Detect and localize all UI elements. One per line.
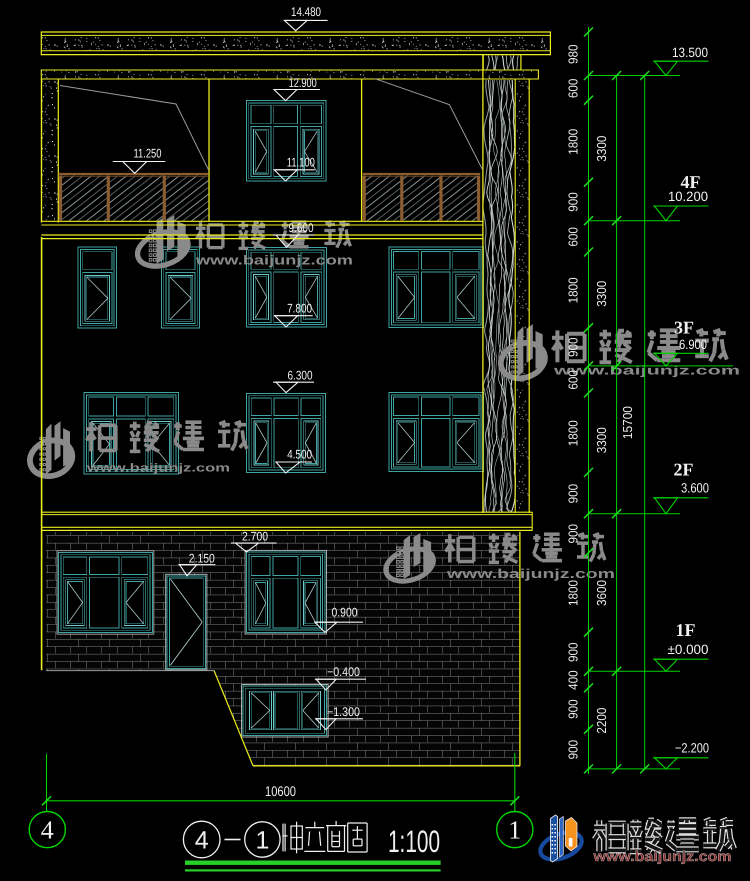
svg-text:3F: 3F xyxy=(674,318,694,338)
svg-text:900: 900 xyxy=(566,740,581,760)
svg-text:1:100: 1:100 xyxy=(388,824,440,859)
svg-text:2F: 2F xyxy=(674,460,694,480)
svg-text:900: 900 xyxy=(566,338,581,358)
svg-text:4.500: 4.500 xyxy=(287,448,312,462)
svg-text:900: 900 xyxy=(566,643,581,663)
svg-text:1800: 1800 xyxy=(566,580,581,606)
svg-text:980: 980 xyxy=(566,44,581,64)
svg-text:3300: 3300 xyxy=(594,281,609,307)
svg-text:−2.200: −2.200 xyxy=(675,741,709,756)
svg-text:600: 600 xyxy=(566,370,581,390)
svg-text:www.baijunjz.com: www.baijunjz.com xyxy=(86,463,230,475)
svg-text:900: 900 xyxy=(566,484,581,504)
svg-text:1800: 1800 xyxy=(566,129,581,155)
svg-text:2.700: 2.700 xyxy=(242,530,268,544)
svg-text:10.200: 10.200 xyxy=(668,189,708,204)
svg-text:11.100: 11.100 xyxy=(287,156,315,170)
svg-text:3.600: 3.600 xyxy=(681,481,709,496)
svg-text:3300: 3300 xyxy=(594,136,609,162)
svg-text:−0.400: −0.400 xyxy=(327,665,360,679)
svg-text:600: 600 xyxy=(566,79,581,99)
svg-text:1800: 1800 xyxy=(566,420,581,446)
svg-text:9.600: 9.600 xyxy=(289,221,314,235)
svg-text:15700: 15700 xyxy=(620,406,635,439)
svg-text:±0.000: ±0.000 xyxy=(668,642,709,657)
svg-text:2.150: 2.150 xyxy=(189,552,215,566)
svg-text:6.300: 6.300 xyxy=(288,369,313,383)
svg-text:400: 400 xyxy=(566,670,581,690)
svg-text:900: 900 xyxy=(566,699,581,719)
svg-text:www.baijunjz.com: www.baijunjz.com xyxy=(195,253,353,268)
svg-text:−1.300: −1.300 xyxy=(327,705,360,719)
svg-text:1: 1 xyxy=(255,827,269,855)
svg-text:1F: 1F xyxy=(676,620,696,640)
svg-text:6.900: 6.900 xyxy=(679,337,707,352)
svg-text:12.900: 12.900 xyxy=(289,76,317,90)
svg-text:10600: 10600 xyxy=(265,783,296,799)
svg-text:1: 1 xyxy=(508,816,521,845)
svg-text:13.500: 13.500 xyxy=(672,45,708,60)
svg-text:900: 900 xyxy=(566,192,581,212)
svg-text:3600: 3600 xyxy=(594,580,609,606)
svg-text:11.250: 11.250 xyxy=(134,147,162,161)
svg-text:4: 4 xyxy=(41,816,54,845)
svg-text:2200: 2200 xyxy=(594,708,609,734)
svg-text:0.900: 0.900 xyxy=(332,606,358,620)
svg-text:900: 900 xyxy=(566,524,581,544)
svg-text:7.800: 7.800 xyxy=(287,302,312,316)
svg-text:1800: 1800 xyxy=(566,277,581,303)
svg-text:600: 600 xyxy=(566,227,581,247)
svg-text:www.baijunjz.com: www.baijunjz.com xyxy=(446,566,615,581)
svg-text:3300: 3300 xyxy=(594,427,609,453)
svg-text:14.480: 14.480 xyxy=(291,5,321,19)
svg-text:www.baijunjz.com: www.baijunjz.com xyxy=(592,848,731,864)
svg-text:4: 4 xyxy=(195,827,209,855)
